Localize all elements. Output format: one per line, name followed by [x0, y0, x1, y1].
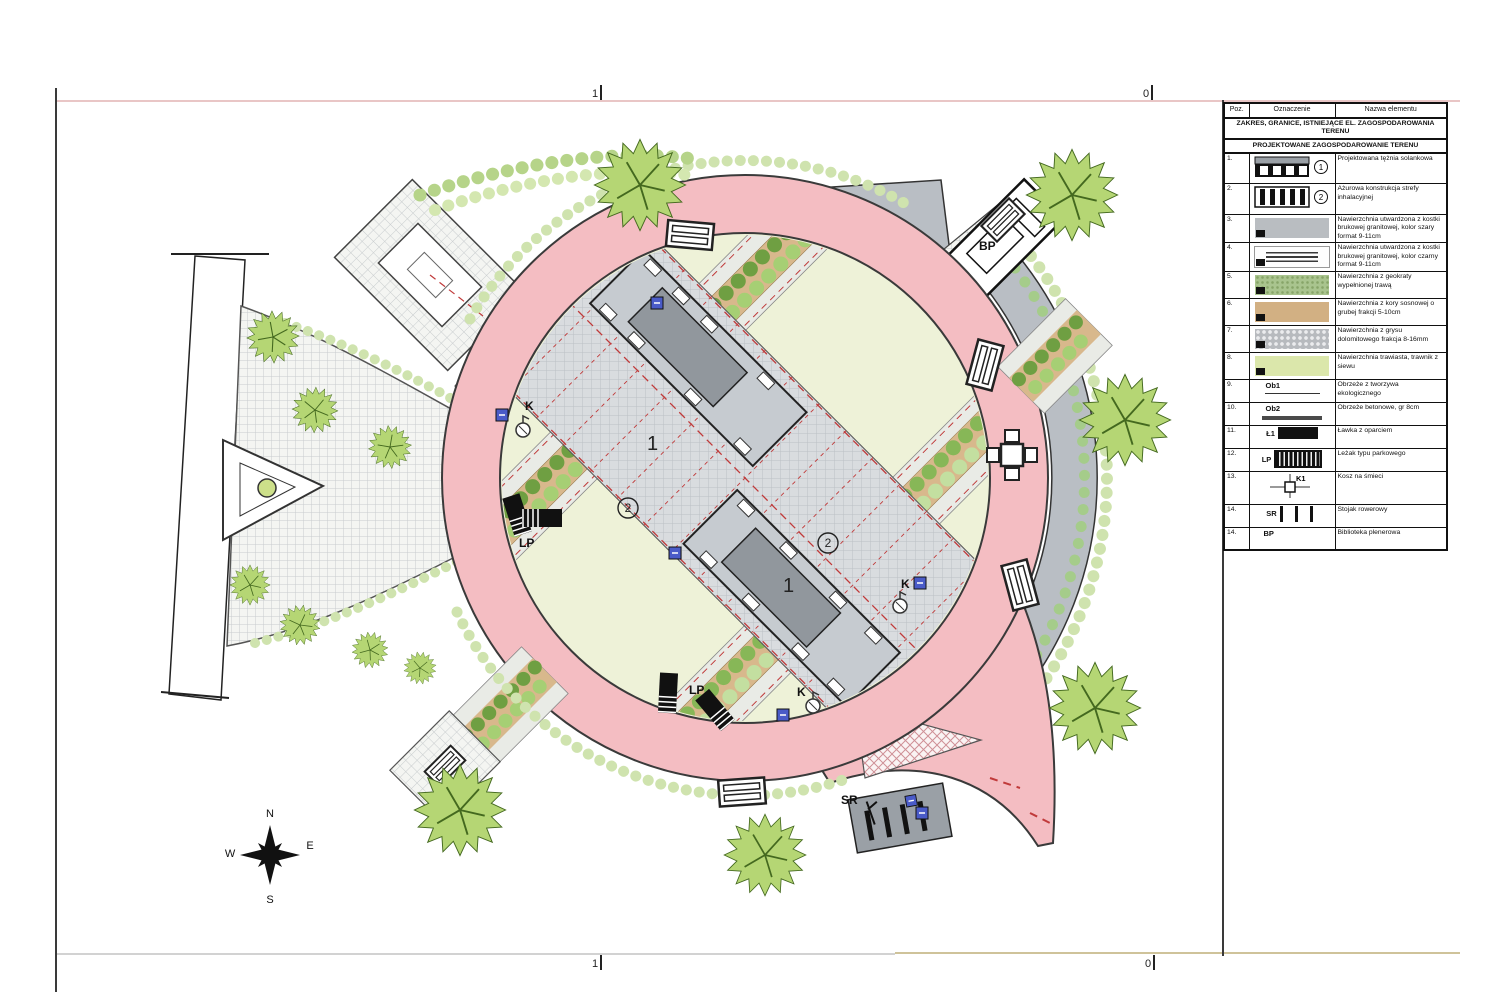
legend-row: 6. Nawierzchnia z kory sosnowej o grubej… — [1224, 299, 1447, 326]
legend-row: 1. 1 Projektowana tężnia solankowa — [1224, 153, 1447, 184]
marker-icon — [651, 297, 663, 309]
swatch-lawn — [1255, 356, 1330, 376]
marker-icon — [669, 547, 681, 559]
legend-col-symbol: Oznaczenie — [1249, 103, 1335, 118]
legend-row: 5. Nawierzchnia z geokraty wypełnionej t… — [1224, 272, 1447, 299]
compass-s: S — [266, 894, 273, 906]
compass-n: N — [266, 808, 274, 820]
edge-thick-line-symbol — [1262, 416, 1322, 420]
label-trash: K — [797, 685, 806, 699]
bike-rack-symbol — [1280, 506, 1318, 522]
legend-row: 3. Nawierzchnia utwardzona z kostki bruk… — [1224, 214, 1447, 242]
svg-text:2: 2 — [825, 536, 832, 550]
legend-table: Poz. Oznaczenie Nazwa elementu ZAKRES, G… — [1223, 102, 1448, 551]
deck-chair-symbol — [1274, 450, 1322, 468]
legend-row: 11. Ł1 Ławka z oparciem — [1224, 426, 1447, 449]
svg-text:1: 1 — [1319, 163, 1324, 172]
legend-row: 9. Ob1 Obrzeże z tworzywa ekologicznego — [1224, 380, 1447, 403]
svg-text:2: 2 — [625, 501, 632, 515]
legend-row: 14. SR Stojak rowerowy — [1224, 504, 1447, 527]
compass-e: E — [306, 840, 313, 852]
compass-w: W — [225, 848, 236, 860]
label-bike-rack: SR — [841, 793, 858, 807]
legend-row: 4. Nawierzchnia utwardzona z kostki bruk… — [1224, 243, 1447, 272]
label-trash: K — [525, 399, 534, 413]
marker-icon — [916, 807, 928, 819]
site-plan-drawing: 1 1 2 2 K K K LP LP SR BP N E S W — [55, 88, 1222, 984]
bench-icon — [666, 220, 714, 250]
legend-section-existing: ZAKRES, GRANICE, ISTNIEJĄCE EL. ZAGOSPOD… — [1224, 118, 1447, 139]
legend-row: 2. 2 Ażurowa konstrukcja strefy inhalacy… — [1224, 184, 1447, 214]
legend-col-poz: Poz. — [1224, 103, 1249, 118]
bench-icon — [718, 777, 766, 806]
compass-rose: N E S W — [225, 808, 314, 906]
svg-text:K1: K1 — [1296, 474, 1306, 483]
swatch-geogrid-grass — [1255, 275, 1330, 295]
deck-chair-icon — [658, 673, 678, 714]
swatch-pine-bark — [1255, 302, 1330, 322]
structure-number-1: 1 — [783, 575, 794, 597]
label-trash: K — [901, 577, 910, 591]
swatch-dolomite-gravel — [1255, 329, 1330, 349]
label-deck-chair: LP — [689, 683, 704, 697]
bench-solid-symbol — [1278, 427, 1318, 439]
trash-bin-symbol: K1 — [1249, 472, 1335, 504]
label-library: BP — [979, 239, 996, 253]
legend-col-name: Nazwa elementu — [1335, 103, 1447, 118]
legend-header-row: Poz. Oznaczenie Nazwa elementu — [1224, 103, 1447, 118]
legend-row: 10. Ob2 Obrzeże betonowe, gr 8cm — [1224, 403, 1447, 426]
openwork-structure-symbol: 2 — [1249, 184, 1335, 214]
legend-row: 7. Nawierzchnia z grysu dolomitowego fra… — [1224, 326, 1447, 353]
legend-row: 8. Nawierzchnia trawiasta, trawnik z sie… — [1224, 353, 1447, 380]
legend-row: 12. LP Leżak typu parkowego — [1224, 449, 1447, 472]
deck-chair-icon — [522, 509, 562, 527]
site-plan-sheet: { "page": { "ruler": {"one": "1", "zero"… — [0, 0, 1487, 996]
marker-icon — [496, 409, 508, 421]
legend-row: 13. K1 Kosz na śmieci — [1224, 472, 1447, 504]
graduation-tower-symbol: 1 — [1249, 153, 1335, 184]
edge-thin-line-symbol — [1265, 393, 1320, 394]
legend-row: 14. BP Biblioteka plenerowa — [1224, 527, 1447, 550]
swatch-gray-cobble — [1255, 218, 1330, 238]
bike-rack — [848, 783, 952, 853]
label-deck-chair: LP — [519, 536, 534, 550]
marker-icon — [777, 709, 789, 721]
island-shrub — [258, 479, 276, 497]
library-symbol: BP — [1264, 529, 1274, 538]
swatch-black-cobble — [1254, 246, 1331, 268]
svg-text:2: 2 — [1319, 193, 1324, 202]
marker-icon — [914, 577, 926, 589]
structure-number-1: 1 — [647, 433, 658, 455]
legend-section-designed: PROJEKTOWANE ZAGOSPODAROWANIE TERENU — [1224, 139, 1447, 153]
